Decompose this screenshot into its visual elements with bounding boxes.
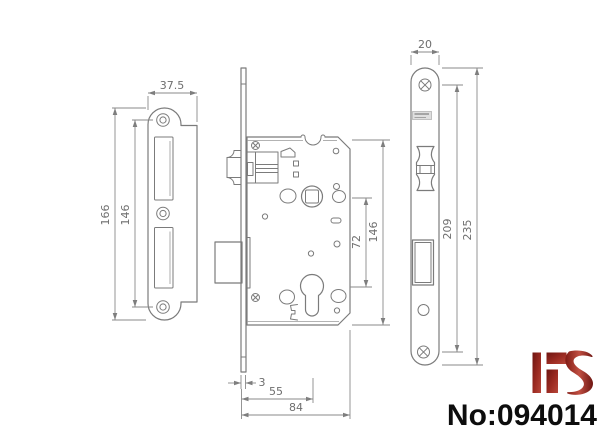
dim-label-146-left: 146: [119, 205, 132, 226]
dim-label-146-case: 146: [367, 222, 380, 243]
logo-bar-left: [533, 353, 542, 394]
logo-block-top: [547, 353, 567, 365]
brand-marking: [413, 112, 432, 120]
dim-label-209: 209: [441, 219, 454, 240]
dim-label-84: 84: [289, 401, 303, 414]
drawing-canvas: 37.5 166 146: [0, 0, 600, 440]
dim-label-72: 72: [350, 235, 363, 249]
logo-block-bottom: [547, 370, 559, 394]
dim-label-3: 3: [259, 376, 266, 389]
product-number: No:094014: [447, 399, 597, 432]
dim-label-55: 55: [269, 385, 283, 398]
technical-drawing: 37.5 166 146: [0, 0, 600, 440]
dim-label-20: 20: [418, 38, 432, 51]
dim-label-235: 235: [461, 220, 474, 241]
dim-label-37-5: 37.5: [160, 79, 185, 92]
background: [0, 0, 600, 440]
dim-label-166: 166: [99, 205, 112, 226]
